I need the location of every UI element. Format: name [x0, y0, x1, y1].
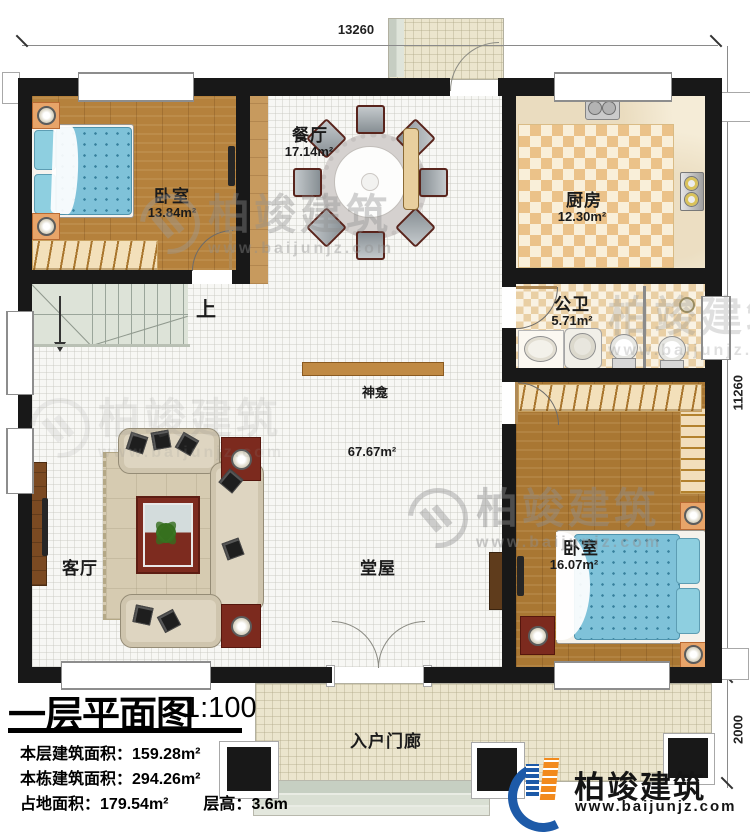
room-label-bedroom1: 卧室	[154, 188, 190, 206]
dimension-top: 13260	[338, 22, 374, 37]
wall	[18, 490, 32, 683]
window	[701, 296, 731, 360]
wall	[502, 96, 516, 287]
wall	[498, 78, 556, 96]
bath-partition	[643, 286, 646, 368]
staircase	[32, 284, 188, 346]
lamp-icon	[37, 217, 56, 236]
entry-steps	[253, 780, 490, 816]
lamp-icon	[684, 506, 703, 525]
dimension-line-top	[22, 45, 718, 46]
door-leaf	[229, 230, 232, 270]
room-area-bedroom2: 16.07m²	[550, 558, 598, 572]
sink-basin	[588, 101, 602, 115]
room-area-dining: 17.14m²	[285, 145, 333, 159]
dining-chair	[419, 168, 448, 197]
wall	[207, 667, 332, 683]
window	[554, 72, 672, 102]
room-label-hall: 堂屋	[360, 560, 396, 578]
wall	[666, 667, 722, 683]
porch-column	[227, 747, 271, 791]
room-label-living: 客厅	[62, 560, 98, 578]
tv-icon	[42, 498, 48, 556]
shrine-shelf	[302, 362, 444, 376]
wall	[236, 96, 250, 270]
stair-rail	[32, 344, 190, 347]
window	[6, 311, 34, 395]
shelf-ladder	[680, 408, 707, 494]
tv-icon	[517, 556, 524, 596]
window	[554, 661, 670, 690]
stair-direction-line	[59, 296, 61, 342]
brand-website: www.baijunjz.com	[575, 798, 736, 815]
door-leaf	[516, 286, 557, 289]
bedroom1-wardrobe	[32, 240, 158, 271]
plan-scale: 1:100	[184, 692, 257, 725]
shrine-label: 神龛	[362, 386, 388, 400]
dimension-porch: 2000	[731, 715, 746, 745]
dining-chair	[356, 105, 385, 134]
room-label-entry-porch: 入户门廊	[350, 733, 422, 751]
sofa-pillow	[151, 430, 172, 451]
window-box	[720, 92, 750, 122]
dining-table-center	[361, 173, 379, 191]
lamp-icon	[231, 616, 252, 637]
room-label-bathroom: 公卫	[554, 296, 590, 314]
window	[78, 72, 194, 102]
shower-basin	[569, 333, 596, 360]
room-area-bedroom1: 13.84m²	[148, 206, 196, 220]
room-area-hall: 67.67m²	[348, 445, 396, 459]
burner-icon	[684, 192, 699, 207]
sink-basin	[602, 101, 616, 115]
wall	[190, 78, 450, 96]
wall	[705, 357, 722, 667]
floor-drain-icon	[679, 297, 695, 313]
dining-chair	[356, 231, 385, 260]
wall	[502, 424, 516, 667]
sofa-pillow	[132, 604, 153, 625]
wall	[18, 270, 192, 284]
bed2-pillow	[676, 588, 700, 634]
wall	[502, 368, 722, 382]
sideboard	[403, 128, 419, 210]
room-label-dining: 餐厅	[292, 127, 328, 145]
lamp-icon	[684, 645, 703, 664]
room-label-bedroom2: 卧室	[563, 540, 599, 558]
window	[6, 428, 34, 494]
wall	[18, 391, 32, 430]
room-label-kitchen: 厨房	[566, 192, 602, 210]
brand-logo-icon	[508, 756, 570, 824]
lamp-icon	[37, 106, 56, 125]
wall	[424, 667, 556, 683]
tv-icon	[228, 146, 235, 186]
stairs-up-label: 上	[196, 300, 216, 321]
burner-icon	[684, 176, 699, 191]
stair-treads	[92, 284, 188, 346]
toilet-bowl	[610, 334, 638, 361]
room-area-bathroom: 5.71m²	[551, 314, 592, 328]
wall	[502, 268, 722, 284]
wall	[232, 270, 250, 284]
back-porch-mat	[389, 19, 404, 77]
bed2-pillow	[676, 538, 700, 584]
floor-plan-canvas: 卧室 13.84m² 餐厅 17.14m² 厨房 12.30m² 公卫 5.71…	[0, 0, 750, 832]
stat-line-3: 占地面积：179.54m² 层高：3.6m	[20, 790, 288, 814]
title-rule	[8, 728, 242, 733]
lamp-icon	[231, 449, 252, 470]
wall	[705, 78, 722, 298]
door-leaf	[515, 382, 518, 424]
wood-partition-strip	[250, 96, 268, 284]
dimension-right: 11260	[731, 381, 746, 411]
lamp-icon	[528, 626, 548, 646]
room-area-kitchen: 12.30m²	[558, 210, 606, 224]
dining-chair	[293, 168, 322, 197]
wall	[18, 667, 63, 683]
stat-line-1: 本层建筑面积：159.28m²	[20, 740, 201, 764]
toilet-bowl	[658, 336, 686, 363]
bath-sink	[524, 336, 557, 362]
stat-line-2: 本栋建筑面积：294.26m²	[20, 765, 201, 789]
